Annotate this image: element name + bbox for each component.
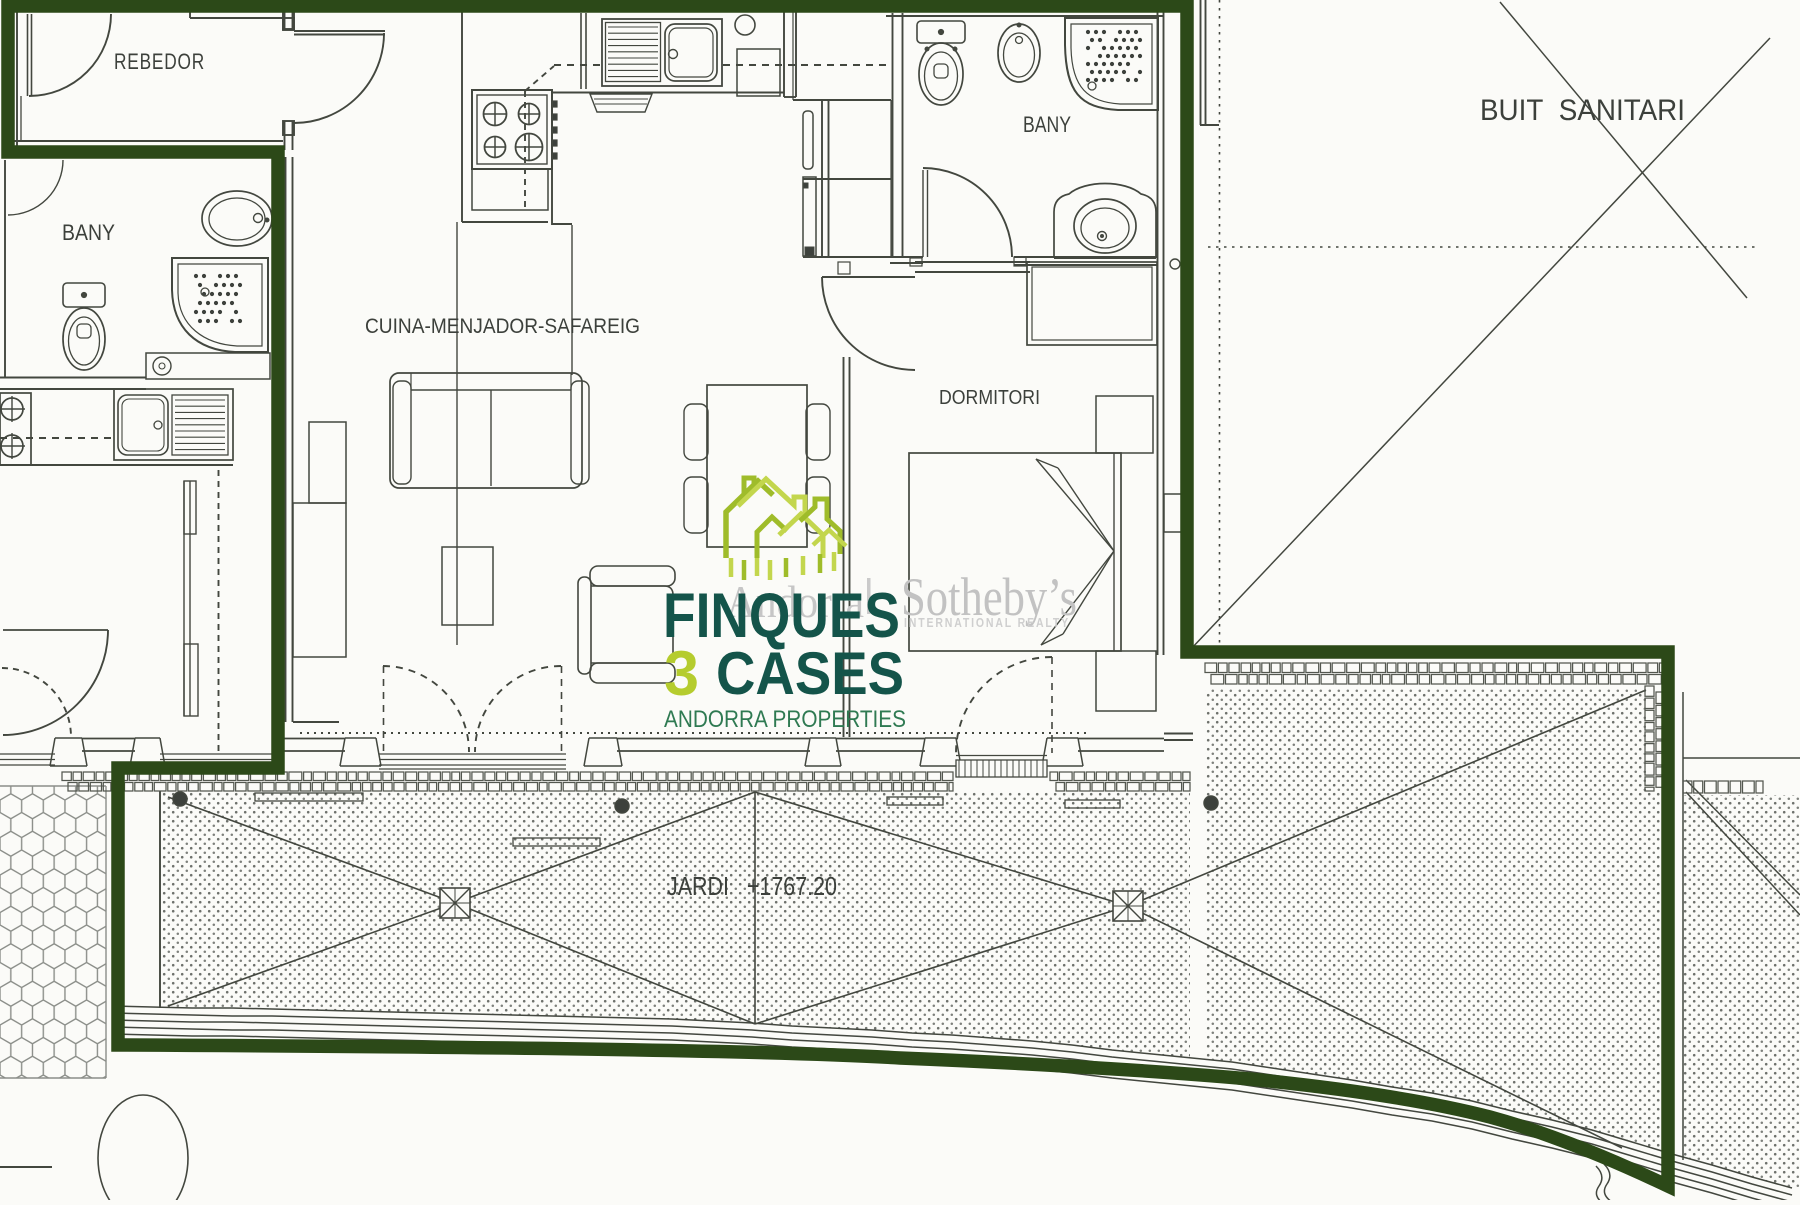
svg-text:DORMITORI: DORMITORI [939,387,1040,409]
svg-text:BANY: BANY [1023,112,1071,137]
svg-text:REBEDOR: REBEDOR [114,49,205,74]
svg-text:BANY: BANY [62,220,115,245]
svg-text:CUINA-MENJADOR-SAFAREIG: CUINA-MENJADOR-SAFAREIG [365,315,640,338]
svg-text:CASES: CASES [716,640,904,707]
svg-text:JARDI +1767.20: JARDI +1767.20 [667,871,837,901]
svg-text:INTERNATIONAL REALTY: INTERNATIONAL REALTY [904,616,1070,630]
svg-text:ANDORRA PROPERTIES: ANDORRA PROPERTIES [664,706,906,733]
svg-text:3: 3 [664,639,699,709]
svg-text:BUIT SANITARI: BUIT SANITARI [1480,94,1685,127]
